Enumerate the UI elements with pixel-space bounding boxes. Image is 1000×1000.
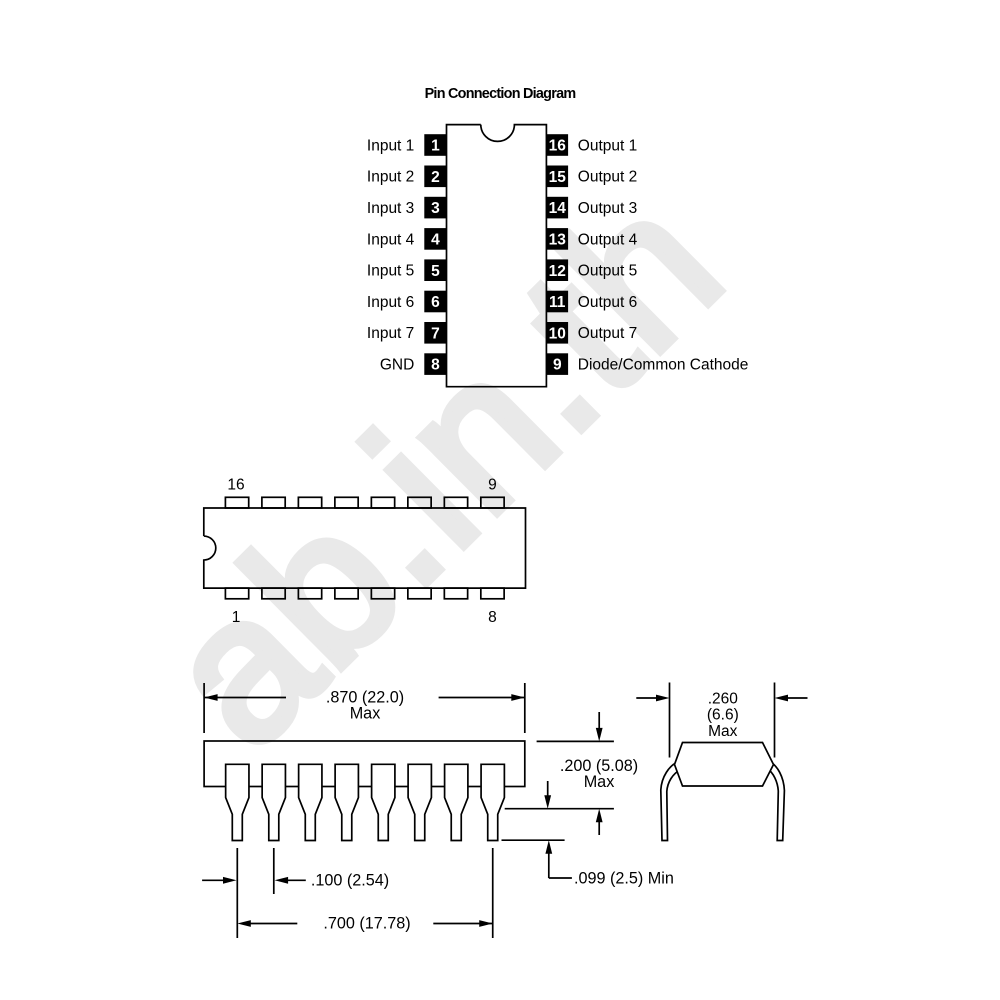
svg-text:Input 3: Input 3: [367, 200, 414, 217]
svg-text:Max: Max: [584, 773, 615, 791]
svg-text:10: 10: [549, 325, 566, 342]
svg-text:13: 13: [549, 232, 567, 249]
svg-text:Max: Max: [350, 705, 381, 723]
svg-text:11: 11: [549, 294, 566, 311]
svg-text:3: 3: [431, 200, 440, 217]
svg-text:.700 (17.78): .700 (17.78): [323, 915, 410, 933]
svg-text:.099 (2.5) Min: .099 (2.5) Min: [574, 870, 674, 888]
svg-text:Input 7: Input 7: [367, 325, 414, 342]
svg-text:Output 3: Output 3: [578, 200, 637, 217]
svg-text:1: 1: [431, 138, 440, 155]
svg-text:Output 6: Output 6: [578, 294, 637, 311]
svg-text:Output 7: Output 7: [578, 325, 637, 342]
svg-text:Input 1: Input 1: [367, 137, 414, 154]
svg-text:6: 6: [431, 294, 440, 311]
svg-text:.100 (2.54): .100 (2.54): [311, 872, 389, 890]
svg-text:.260: .260: [708, 691, 739, 708]
svg-text:Output 4: Output 4: [578, 231, 638, 248]
svg-text:5: 5: [431, 263, 440, 280]
svg-text:8: 8: [488, 609, 497, 626]
svg-text:16: 16: [227, 477, 244, 494]
svg-text:Output 2: Output 2: [578, 169, 637, 186]
svg-text:15: 15: [549, 169, 567, 186]
svg-text:2: 2: [431, 169, 440, 186]
svg-text:Input 5: Input 5: [367, 263, 414, 280]
svg-text:9: 9: [553, 357, 562, 374]
svg-text:Input 6: Input 6: [367, 294, 414, 311]
svg-text:Input 4: Input 4: [367, 231, 415, 248]
svg-text:Max: Max: [708, 723, 738, 740]
svg-text:Pin Connection Diagram: Pin Connection Diagram: [425, 86, 576, 102]
svg-text:9: 9: [488, 477, 497, 494]
svg-text:12: 12: [549, 263, 566, 280]
svg-text:Output 5: Output 5: [578, 263, 637, 280]
svg-text:GND: GND: [380, 357, 414, 374]
svg-text:1: 1: [232, 609, 241, 626]
svg-text:8: 8: [431, 357, 440, 374]
svg-text:(6.6): (6.6): [707, 707, 739, 724]
svg-text:Diode/Common Cathode: Diode/Common Cathode: [578, 357, 749, 374]
svg-text:4: 4: [431, 232, 440, 249]
svg-text:Input 2: Input 2: [367, 169, 414, 186]
svg-text:7: 7: [431, 325, 440, 342]
svg-text:16: 16: [549, 138, 567, 155]
svg-text:Output 1: Output 1: [578, 137, 637, 154]
svg-text:14: 14: [549, 200, 567, 217]
